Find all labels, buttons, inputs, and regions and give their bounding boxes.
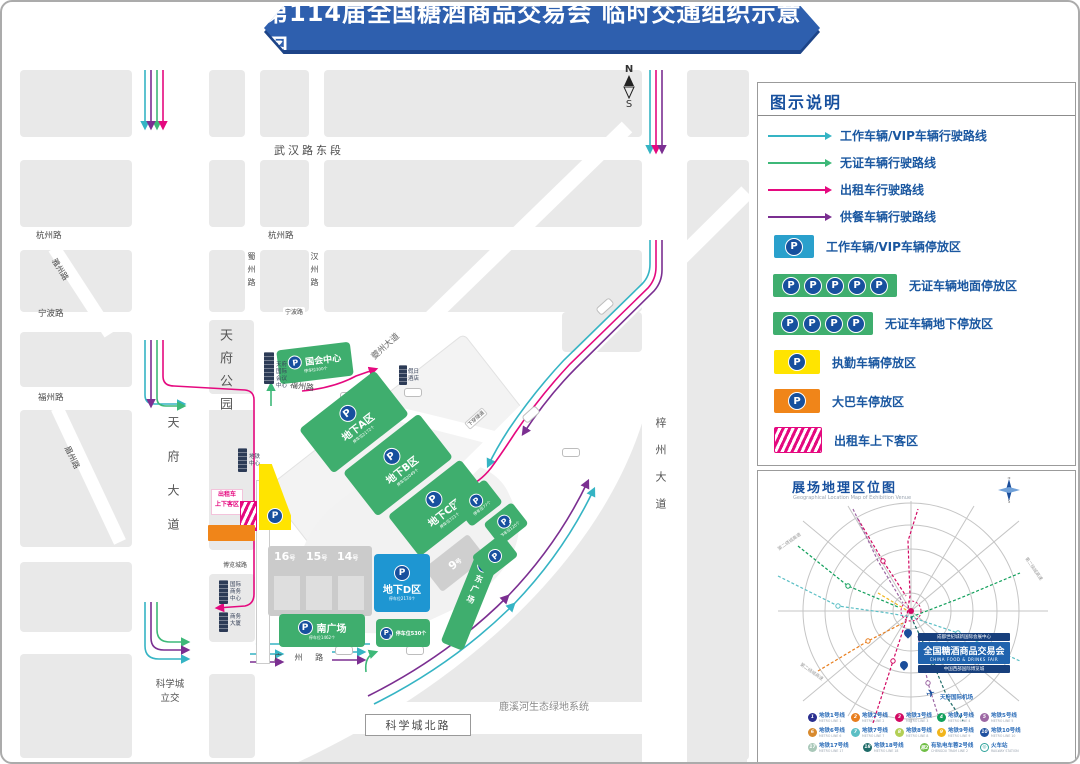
intl-business-center-building-icon (219, 580, 228, 604)
hall-16-label: 16 (274, 550, 289, 563)
fair-badge: 成都世纪城新国际会展中心 全国糖酒商品交易会 CHINA FOOD & DRIN… (918, 633, 1010, 673)
poster: 第114届全国糖酒商品交易会 临时交通组织示意图 (0, 0, 1080, 764)
compass-needle-icon (622, 75, 636, 99)
parking-icon (394, 565, 410, 581)
parking-zone-south-square: 南广场 停车位1462个 (279, 614, 365, 647)
gate-pill (335, 646, 353, 655)
badge-fair-name-en: CHINA FOOD & DRINKS FAIR (918, 657, 1010, 662)
holiday-hotel-label: 假日酒店 (408, 369, 420, 383)
taxi-pickup-label: 出租车 上下客区 (211, 489, 243, 515)
road-hangzhou-mid: 杭州路 (268, 229, 294, 241)
metro-center-label: 地铁中心 (249, 454, 261, 468)
metro-center-building-icon (238, 448, 247, 472)
tianfu-park-label: 天府公园 (215, 328, 234, 380)
conference-center-label: 天府国际会议中心 (276, 362, 288, 390)
business-tower-building-icon (219, 612, 228, 632)
intl-business-center-label: 国际商务中心 (230, 582, 242, 603)
road-zizhou-avenue: 梓州大道 (652, 417, 668, 525)
business-tower-label: 商务大厦 (230, 614, 242, 628)
parking-icon (485, 546, 505, 566)
road-kexuecheng-north: 科学城北路 (365, 714, 471, 736)
road-hangzhou-left: 杭州路 (36, 229, 62, 241)
gate-pill (406, 646, 424, 655)
zone-name: 地下D区 (383, 581, 421, 596)
bus-parking-zone (208, 525, 255, 541)
parking-zone-p3: 3 停车位530个 (376, 619, 430, 647)
parking-icon: 3 (380, 627, 393, 640)
road-ningbo-mid: 宁波路 (283, 307, 305, 316)
hall-15-label: 15 (306, 550, 321, 563)
parking-icon (267, 508, 283, 524)
hall-14-label: 14 (337, 550, 352, 563)
badge-fair-name: 全国糖酒商品交易会 (918, 644, 1010, 657)
holiday-hotel-building-icon (399, 365, 407, 385)
conference-center-building-icon (264, 352, 274, 384)
parking-zone-underground-d-vip: 地下D区 停车位2174个 (374, 554, 430, 612)
badge-venue-top: 成都世纪城新国际会展中心 (918, 633, 1010, 641)
road-wuhan-east: 武汉路东段 (274, 142, 344, 158)
compass-n-label: N (614, 64, 644, 75)
compass-s-label: S (614, 99, 644, 110)
luxi-greenbelt-label: 鹿溪河生态绿地系统 (499, 698, 589, 713)
road-hanzhou: 汉州路 (309, 252, 320, 291)
north-compass: N S (614, 64, 644, 110)
road-fuzhou-left: 福州路 (38, 391, 64, 403)
road-tianfu-avenue: 天府大道 (165, 416, 182, 552)
road-shuzhou: 蜀州路 (246, 252, 257, 291)
zone-name: 南广场 (317, 620, 347, 635)
hall-16-15-14: 16号 15号 14号 (268, 546, 372, 616)
parking-icon (298, 620, 313, 635)
badge-venue-bottom: 中国西部国际博览城 (918, 665, 1010, 673)
kexuecheng-interchange-label: 科学城 立交 (148, 678, 192, 707)
parking-icon (287, 355, 303, 371)
gate-pill (404, 388, 422, 397)
road-guangzhou: 广 州 路 (274, 652, 328, 663)
gate-pill (562, 448, 580, 457)
road-bolancheng: 博览城路 (223, 560, 247, 569)
road-ningbo-left: 宁波路 (38, 307, 64, 319)
zone-name: 东广场 (463, 573, 486, 608)
